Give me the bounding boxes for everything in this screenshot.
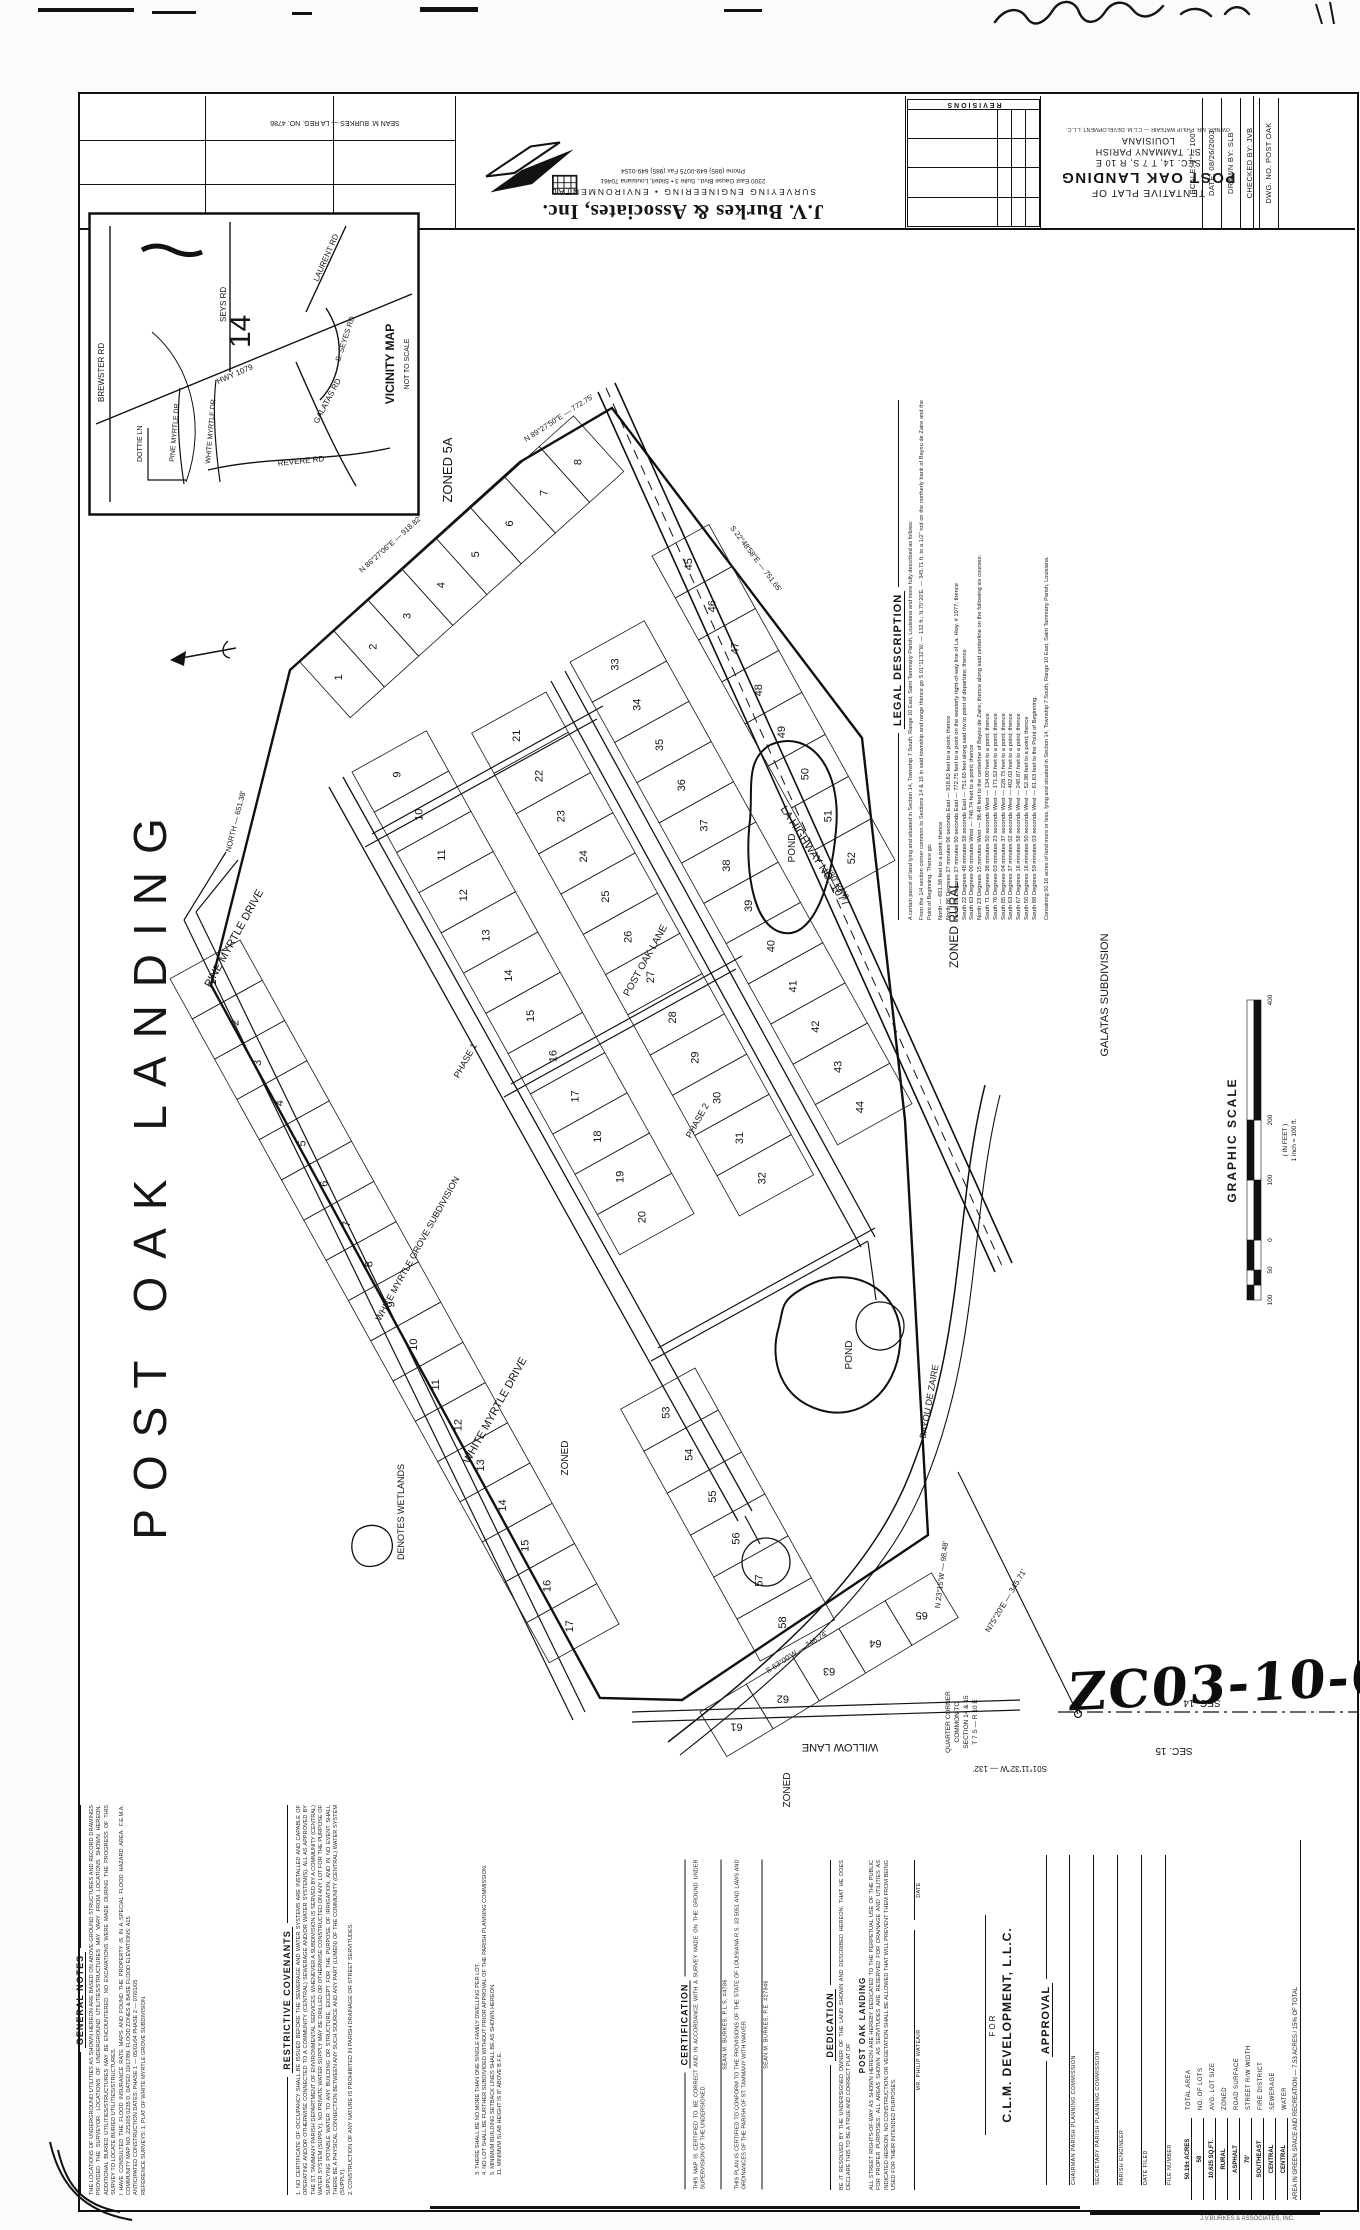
scale-bar-segment — [1254, 1270, 1261, 1285]
site-data-label: ROAD SURFACE — [1234, 2058, 1240, 2110]
scale-bar-segment — [1254, 1285, 1261, 1300]
list-item: North 86 Degrees 27 minutes 06 seconds E… — [946, 400, 954, 920]
tie-line — [958, 1472, 1078, 1714]
plat-label: 19 — [614, 1171, 626, 1183]
dedication-heading: DEDICATION — [825, 1989, 836, 2060]
plat-label: 14 — [497, 1499, 509, 1511]
plat-label: 14 — [503, 970, 515, 982]
plat-title-line5: LOUISIANA — [1121, 136, 1174, 146]
plat-label: 15 — [519, 1540, 531, 1552]
north-arrow-icon — [170, 641, 236, 666]
list-item: South 76 Degrees 03 minutes 23 seconds W… — [993, 400, 1001, 920]
strip-divider — [205, 96, 206, 228]
dedication-date-signature: DATE — [914, 1860, 922, 1920]
plat-label: 52 — [846, 852, 858, 864]
plat-label: N 86°27'06"E — 918.82' — [357, 513, 423, 574]
legal-intro: A certain parcel of land lying and situa… — [908, 400, 915, 920]
site-data-row: 50.19± ACRESTOTAL AREA — [1185, 1840, 1192, 2200]
list-item: South 85 Degrees 04 minutes 37 seconds W… — [1001, 400, 1009, 920]
site-data-label: TOTAL AREA — [1186, 2070, 1192, 2110]
surveyor-cell: SEAN M. BURKES — LA REG. NO. 4786 — [215, 105, 455, 141]
revision-row — [908, 198, 1039, 226]
plat-label: 13 — [475, 1459, 487, 1471]
plat-label: 55 — [707, 1490, 719, 1502]
plat-label: COMMON TO — [954, 1702, 961, 1743]
list-item: South 63 Degrees 00 minutes West — 746.7… — [969, 400, 977, 920]
plat-label: 5 — [296, 1140, 308, 1146]
plat-label: WILLOW LANE — [802, 1741, 878, 1753]
site-data-row: 58NO. OF LOTS — [1197, 1840, 1204, 2200]
owner-for-label: FOR — [988, 1875, 997, 2175]
scale-bar-segment — [1254, 1180, 1261, 1240]
site-data-label: NO. OF LOTS — [1198, 2068, 1204, 2110]
plat-label: POND — [787, 834, 798, 863]
surveyor-name: SEAN M. BURKES — LA REG. NO. 4786 — [270, 120, 400, 127]
scan-mark — [152, 11, 196, 14]
scale-bar-segment — [1247, 1120, 1254, 1180]
list-item: South 88 Degrees 59 minutes 03 seconds W… — [1032, 400, 1040, 920]
plat-label: 26 — [622, 931, 634, 943]
site-data-row: RURALZONED — [1221, 1840, 1228, 2200]
revisions-header: REVISIONS — [908, 100, 1039, 110]
plat-label: 36 — [676, 779, 688, 791]
site-data-value: 10,625 SQ.FT. — [1209, 2118, 1216, 2200]
plat-label: 12 — [452, 1419, 464, 1431]
site-data-table: 50.19± ACRESTOTAL AREA58NO. OF LOTS10,62… — [1185, 1840, 1345, 2200]
plat-label: 29 — [689, 1051, 701, 1063]
plat-label: 6 — [319, 1181, 331, 1187]
plat-label: N 89°27'50"E — 772.75' — [522, 392, 595, 444]
scan-page: { "scan": { "case_number": "ZC03-10-067"… — [0, 0, 1360, 2230]
scan-mark — [292, 12, 312, 15]
scale-bar-segment — [1247, 1240, 1254, 1270]
plat-label: 54 — [684, 1448, 696, 1460]
approval-signature-line: SECRETARY PARISH PLANNING COMMISSION — [1093, 1855, 1101, 2185]
plat-label: 10 — [408, 1338, 420, 1350]
scale-ratio: 1 inch = 100 ft. — [1290, 1119, 1299, 1162]
list-item: 4. NO LOT SHALL BE FURTHER SUBDIVIDED WI… — [482, 1825, 489, 2175]
plat-label: 7 — [538, 490, 550, 496]
approval: APPROVAL CHAIRMAN PARISH PLANNING COMMIS… — [1040, 1855, 1170, 2185]
certification-heading: CERTIFICATION — [680, 1981, 691, 2069]
plat-label: 35 — [654, 739, 666, 751]
plat-label: PINE MYRTLE DRIVE — [203, 888, 267, 990]
firm-name: J.V. Burkes & Associates, Inc. — [542, 199, 824, 224]
scan-mark — [1090, 2212, 1320, 2215]
site-data-label: AVG. LOT SIZE — [1210, 2063, 1216, 2110]
plat-label: 15 — [525, 1010, 537, 1022]
strip-rule — [80, 184, 455, 185]
plat-label: 20 — [637, 1211, 649, 1223]
covenants-heading: RESTRICTIVE COVENANTS — [282, 1927, 293, 2073]
dedication-project-name: POST OAK LANDING — [858, 1860, 867, 2190]
site-data-label: FIRE DISTRICT — [1258, 2062, 1264, 2110]
scale-bar-segment — [1254, 1240, 1261, 1270]
plat-label: 10 — [414, 809, 426, 821]
plat-label: 51 — [823, 810, 835, 822]
plat-label: 65 — [916, 1609, 928, 1621]
plat-label: 3 — [402, 613, 414, 619]
page-curl — [40, 2130, 180, 2230]
plat-label: 4 — [274, 1100, 286, 1106]
dedication-text: ALL STREET RIGHTS-OF-WAY AS SHOWN HEREON… — [869, 1860, 899, 2190]
plat-label: ZONED — [782, 1773, 793, 1808]
owner-name: C.L.M. DEVELOPMENT, L.L.C. — [1000, 1875, 1014, 2175]
site-data-value: 50.19± ACRES — [1185, 2118, 1192, 2200]
cul-de-sac — [856, 1302, 904, 1350]
plat-label: PHASE 1 — [452, 1041, 479, 1079]
site-data-row: CENTRALSEWERAGE — [1269, 1840, 1276, 2200]
plat-label: 2 — [367, 644, 379, 650]
plat-label: 43 — [832, 1061, 844, 1073]
plat-label: S 63°00'W — 746.74' — [764, 1628, 829, 1675]
scale-tick-label: 100 — [1267, 1294, 1274, 1305]
list-item: South 67 Degrees 16 minutes 58 seconds W… — [1016, 400, 1024, 920]
plat-label: 44 — [855, 1101, 867, 1113]
plat-label: 1 — [207, 979, 219, 985]
site-data-label: WATER — [1282, 2087, 1288, 2110]
legal-closing: Containing 50.16 acres of land more or l… — [1044, 400, 1051, 920]
plat-label: WHITE MYRTLE GROVE SUBDIVISION — [373, 1175, 461, 1323]
dedication-text: BE IT RESOLVED BY THE UNDERSIGNED OWNER … — [839, 1860, 854, 2190]
plat-label: 64 — [869, 1637, 881, 1649]
site-data-value: CENTRAL — [1269, 2118, 1276, 2200]
plat-label: 2 — [229, 1020, 241, 1026]
scale-bar: 100500100200400 — [1239, 975, 1279, 1305]
plat-label: SECTION 14 & 15 — [963, 1695, 970, 1748]
street-stubs — [745, 1242, 876, 1544]
legal-courses: North — 651.38 feet to a point; thenceNo… — [938, 400, 1040, 920]
site-data-label: ZONED — [1222, 2087, 1228, 2110]
revision-row — [908, 169, 1039, 198]
owner-block: FOR C.L.M. DEVELOPMENT, L.L.C. — [975, 1875, 1045, 2175]
approval-signature-line: PARISH ENGINEER — [1117, 1855, 1125, 2185]
plat-label: 9 — [391, 771, 403, 777]
street-centerlines — [329, 777, 752, 1521]
scale-bar-segment — [1254, 1120, 1261, 1180]
list-item: 2. CONSTRUCTION OF ANY NATURE IS PROHIBI… — [348, 1805, 355, 2195]
plat-label: 46 — [706, 600, 718, 612]
site-data-value: CENTRAL — [1281, 2118, 1288, 2200]
plat-label: 57 — [754, 1574, 766, 1586]
plat-label: 18 — [592, 1130, 604, 1142]
list-item: South 63 Degrees 37 minutes 02 seconds W… — [1008, 400, 1016, 920]
plat-label: 27 — [645, 971, 657, 983]
scale-units: ( IN FEET ) — [1281, 1119, 1290, 1162]
plat-label: 11 — [436, 849, 448, 860]
plat-label: 39 — [743, 900, 755, 912]
plat-label: 6 — [504, 521, 516, 527]
green-space-note: AREA IN GREEN SPACE AND RECREATION — 7.5… — [1293, 1840, 1301, 2200]
strip-divider — [1040, 96, 1041, 228]
site-data-row: ASPHALTROAD SURFACE — [1233, 1840, 1240, 2200]
site-data-value: 70' — [1245, 2118, 1252, 2200]
plat-label: 58 — [777, 1616, 789, 1628]
site-data-value: 58 — [1197, 2118, 1204, 2200]
corner-stamp-text: J.V.BURKES & ASSOCIATES, INC. — [1200, 2216, 1295, 2222]
scan-mark — [430, 2206, 1080, 2209]
approval-signature-line: FILE NUMBER — [1165, 1855, 1173, 2185]
covenants-continued: 3. THERE SHALL BE NO MORE THAN ONE SINGL… — [475, 1825, 605, 2175]
lot-parcel — [885, 1573, 958, 1645]
scale-bar-segment — [1247, 1285, 1254, 1300]
title-field: DWG. NO. POST OAK — [1259, 98, 1279, 228]
wetlands-icon — [352, 1525, 393, 1566]
plat-label: 40 — [765, 940, 777, 952]
approval-signature-line: CHAIRMAN PARISH PLANNING COMMISSION — [1069, 1855, 1077, 2185]
plat-label: 42 — [810, 1020, 822, 1032]
plat-label: 45 — [683, 558, 695, 570]
site-data-row: CENTRALWATER — [1281, 1840, 1288, 2200]
plat-label: 47 — [730, 642, 742, 654]
dedication-owner-signature: MR. PHILIP WATEAIR — [914, 1930, 922, 2190]
list-item: North — 651.38 feet to a point; thence — [938, 400, 946, 920]
covenants-items: 1. NO CERTIFICATE OF OCCUPANCY SHALL BE … — [296, 1805, 355, 2195]
legal-intro: From the 1/4 section corner common to Se… — [919, 400, 934, 920]
firm-phone: Phone (985) 649-0075 Fax (985) 649-0154 — [621, 167, 745, 174]
plat-label: 34 — [632, 699, 644, 711]
scale-tick-label: 50 — [1267, 1266, 1274, 1274]
plat-label: DENOTES WETLANDS — [396, 1464, 406, 1560]
approval-signature-line: DATE FILED — [1141, 1855, 1149, 2185]
plat-label: 25 — [600, 891, 612, 903]
scan-mark — [724, 9, 762, 12]
firm-logo-icon — [472, 134, 592, 198]
plat-label: 37 — [699, 819, 711, 831]
site-data-row: SOUTHEASTFIRE DISTRICT — [1257, 1840, 1264, 2200]
scan-mark — [38, 8, 134, 12]
plat-label: 62 — [777, 1693, 789, 1705]
general-notes-heading: GENERAL NOTES — [75, 1952, 86, 2048]
certification-signature: SEAN M. BURKES, P.L.S. #4786 — [720, 1860, 728, 2190]
plat-label: SEC. 15 — [1155, 1745, 1193, 1756]
plat-label: 50 — [799, 768, 811, 780]
title-field: SCALE: 1" = 100' — [1183, 98, 1203, 228]
subdivision-boundary — [211, 408, 928, 1700]
plat-label: WHITE MYRTLE DRIVE — [461, 1355, 529, 1465]
site-data-row: 10,625 SQ.FT.AVG. LOT SIZE — [1209, 1840, 1216, 2200]
scan-mark — [420, 7, 478, 12]
plat-label: 13 — [481, 929, 493, 941]
plat-label: 21 — [511, 730, 523, 742]
list-item: 5. MINIMUM BUILDING SETBACK LINES SHALL … — [490, 1825, 497, 2175]
plat-label: 3 — [252, 1060, 264, 1066]
site-data-row: 70'STREET R/W WIDTH — [1245, 1840, 1252, 2200]
plat-label: 38 — [721, 860, 733, 872]
cul-de-sac — [742, 1538, 790, 1586]
plat-label: 24 — [578, 850, 590, 862]
covenants-continued-items: 3. THERE SHALL BE NO MORE THAN ONE SINGL… — [475, 1825, 505, 2175]
strip-divider — [455, 96, 456, 228]
firm-address: 2300 East Gause Blvd., Suite 3 • Slidell… — [601, 177, 766, 184]
vicinity-road-label: BREWSTER RD — [97, 343, 106, 402]
plat-label: 4 — [436, 582, 448, 588]
title-field: DRAWN BY: SLB — [1221, 98, 1241, 228]
title-field: CHECKED BY: JVB — [1240, 98, 1260, 228]
list-item: North 23 Degrees 15 minutes West — 98.48… — [977, 400, 985, 920]
firm-block: J.V. Burkes & Associates, Inc. SURVEYING… — [458, 102, 908, 224]
handwriting-scribble-icon — [980, 0, 1350, 34]
plat-label: ZONED 5A — [440, 437, 455, 502]
dedication: DEDICATION BE IT RESOLVED BY THE UNDERSI… — [825, 1860, 975, 2190]
plat-label: 12 — [458, 889, 470, 901]
plat-label: 7 — [341, 1221, 353, 1227]
plat-label: 17 — [570, 1090, 582, 1102]
plat-label: 8 — [572, 459, 584, 465]
plat-label: 1 — [333, 674, 345, 680]
list-item: 11. MINIMUM SLAB HEIGHT IS 8" ABOVE B.F.… — [497, 1825, 504, 2175]
plat-label: 41 — [788, 980, 800, 992]
approval-heading: APPROVAL — [1040, 1983, 1053, 2057]
scale-tick-label: 400 — [1267, 994, 1274, 1005]
restrictive-covenants: RESTRICTIVE COVENANTS 1. NO CERTIFICATE … — [282, 1805, 422, 2195]
plat-label: 28 — [667, 1011, 679, 1023]
plat-label: 16 — [547, 1050, 559, 1062]
list-item: South 50 Degrees 16 minutes 50 seconds W… — [1024, 400, 1032, 920]
site-data-value: ASPHALT — [1233, 2118, 1240, 2200]
plat-label: GALATAS SUBDIVISION — [1099, 933, 1111, 1056]
plat-label: S 22°48'58"E — 751.65' — [728, 524, 784, 594]
graphic-scale-title: GRAPHIC SCALE — [1225, 1077, 1239, 1202]
legal-description: LEGAL DESCRIPTION A certain parcel of la… — [892, 400, 1232, 920]
certification: CERTIFICATION THIS MAP IS CERTIFIED TO B… — [680, 1860, 795, 2190]
certification-text: THIS MAP IS CERTIFIED TO BE CORRECT AND … — [694, 1860, 709, 2190]
certification-signature: SEAN M. BURKES, P.E. #27946 — [761, 1860, 769, 2190]
revision-row — [908, 139, 1039, 168]
plat-label: 22 — [533, 770, 545, 782]
revisions-table: REVISIONS — [907, 99, 1040, 227]
site-data-value: RURAL — [1221, 2118, 1228, 2200]
site-data-rows: 50.19± ACRESTOTAL AREA58NO. OF LOTS10,62… — [1185, 1840, 1288, 2200]
plat-label: 31 — [734, 1132, 746, 1144]
site-data-value: SOUTHEAST — [1257, 2118, 1264, 2200]
plat-label: 61 — [730, 1720, 742, 1732]
plat-label: 33 — [609, 658, 621, 670]
pond-shape — [775, 1277, 900, 1412]
plat-label: N 23°15'W — 98.48' — [933, 1540, 950, 1609]
existing-road — [184, 852, 585, 1720]
plat-label: NORTH — 651.38' — [224, 789, 248, 852]
plat-label: 48 — [753, 684, 765, 696]
plat-label: 53 — [660, 1406, 672, 1418]
scale-tick-label: 0 — [1267, 1238, 1274, 1242]
plat-label: 17 — [564, 1620, 576, 1632]
plat-label: S01°11'32"W — 132' — [973, 1764, 1047, 1773]
scale-bar-segment — [1247, 1000, 1254, 1120]
plat-label: ZONED — [560, 1441, 571, 1476]
scale-tick-label: 100 — [1267, 1174, 1274, 1185]
plat-label: 56 — [730, 1532, 742, 1544]
list-item: South 71 Degrees 38 minutes 50 seconds W… — [985, 400, 993, 920]
plat-label: QUARTER CORNER — [945, 1691, 952, 1753]
plat-label: 23 — [556, 810, 568, 822]
approval-signature-lines: CHAIRMAN PARISH PLANNING COMMISSIONSECRE… — [1069, 1855, 1173, 2185]
scale-bar-segment — [1247, 1270, 1254, 1285]
willow-lane-road — [632, 1700, 1020, 1722]
scale-tick-label: 200 — [1267, 1114, 1274, 1125]
plat-label: 5 — [470, 551, 482, 557]
site-data-label: STREET R/W WIDTH — [1246, 2045, 1252, 2110]
certification-text: THIS PLAN IS CERTIFIED TO CONFORM TO THE… — [734, 1860, 749, 2190]
title-field: DATE: 08/26/2003 — [1202, 98, 1222, 228]
corner-stamp: J.V.BURKES & ASSOCIATES, INC. — [1200, 2216, 1295, 2222]
plat-label: T 7 S — R 10 E — [972, 1699, 979, 1745]
bayou-de-zaire — [680, 1095, 1000, 1755]
plat-label: 8 — [363, 1261, 375, 1267]
plat-label: 49 — [776, 726, 788, 738]
scale-bar-segment — [1247, 1180, 1254, 1240]
legal-heading: LEGAL DESCRIPTION — [892, 591, 905, 729]
graphic-scale: GRAPHIC SCALE 100500100200400 ( IN FEET … — [1225, 950, 1335, 1330]
plat-label: 63 — [823, 1665, 835, 1677]
plat-label: POND — [844, 1341, 855, 1370]
plat-label: 11 — [430, 1379, 442, 1390]
plat-label: 9 — [386, 1301, 398, 1307]
list-item: South 22 Degrees 48 minutes 58 seconds E… — [962, 400, 970, 920]
scale-bar-segment — [1254, 1000, 1261, 1120]
plat-label: 32 — [756, 1172, 768, 1184]
plat-label: 16 — [542, 1580, 554, 1592]
site-data-label: SEWERAGE — [1270, 2072, 1276, 2110]
list-item: 1. NO CERTIFICATE OF OCCUPANCY SHALL BE … — [296, 1805, 348, 2195]
list-item: North 89 Degrees 27 minutes 50 seconds E… — [954, 400, 962, 920]
revision-row — [908, 110, 1039, 139]
plat-label: 30 — [712, 1092, 724, 1104]
list-item: 3. THERE SHALL BE NO MORE THAN ONE SINGL… — [475, 1825, 482, 2175]
